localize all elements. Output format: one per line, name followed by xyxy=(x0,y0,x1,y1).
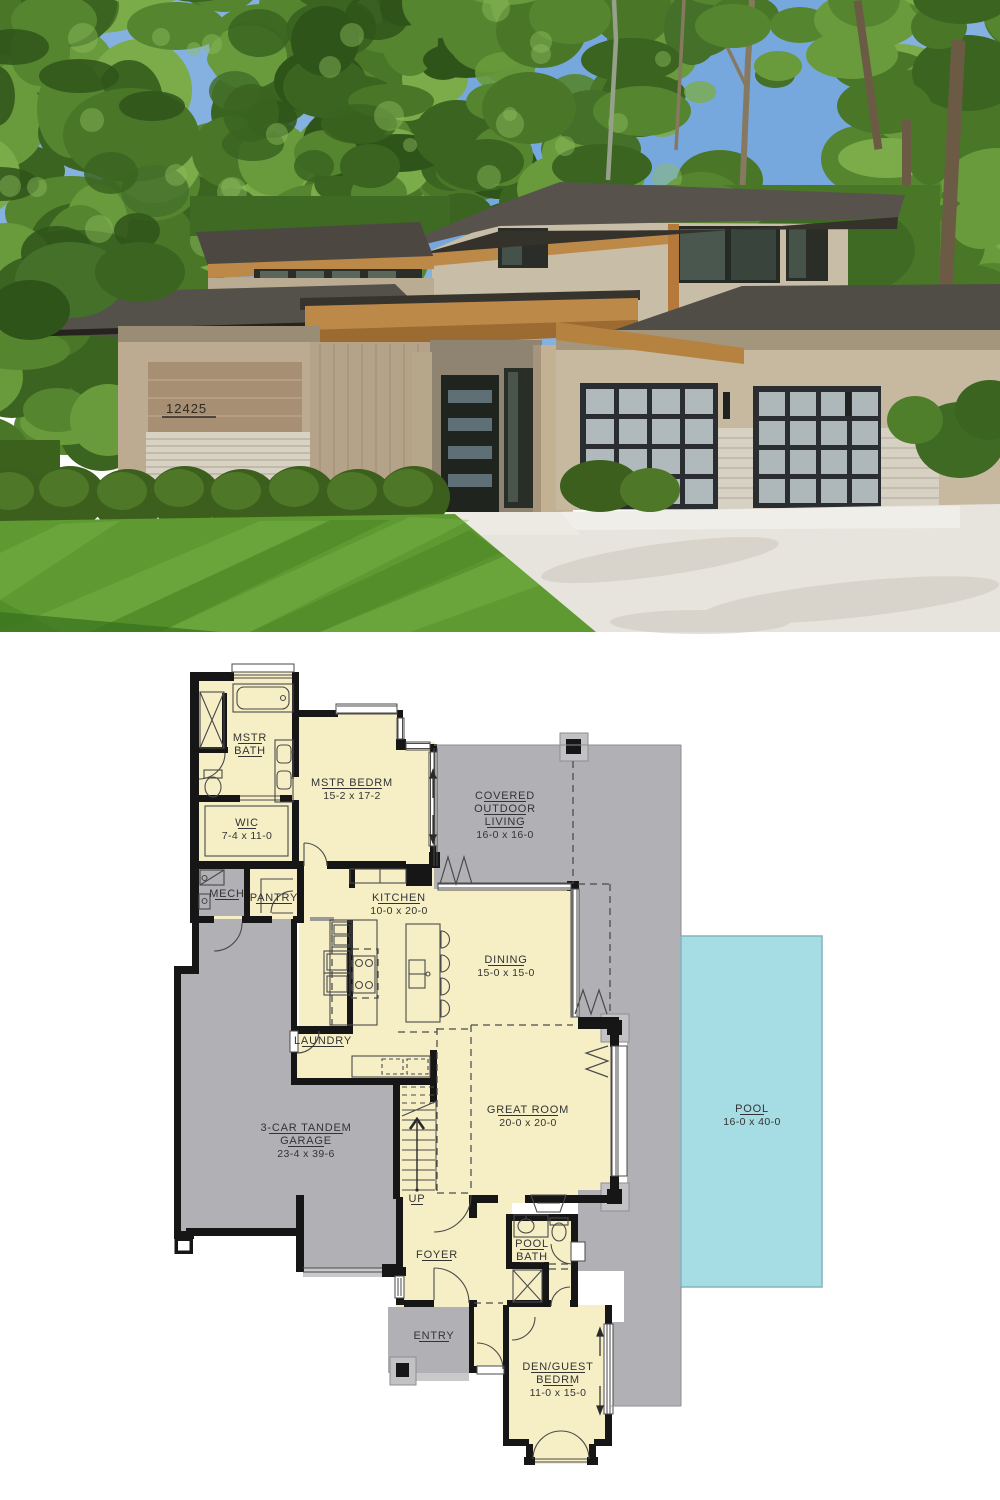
svg-text:LAUNDRY: LAUNDRY xyxy=(294,1035,352,1047)
svg-text:10-0 x 20-0: 10-0 x 20-0 xyxy=(370,905,428,917)
svg-text:POOL: POOL xyxy=(735,1103,769,1115)
svg-text:POOL: POOL xyxy=(515,1238,549,1250)
svg-text:DEN/GUEST: DEN/GUEST xyxy=(522,1361,593,1373)
svg-text:15-0 x 15-0: 15-0 x 15-0 xyxy=(477,967,535,979)
svg-text:16-0 x 40-0: 16-0 x 40-0 xyxy=(723,1116,781,1128)
svg-text:23-4 x 39-6: 23-4 x 39-6 xyxy=(277,1148,335,1160)
svg-text:BATH: BATH xyxy=(516,1251,548,1263)
svg-text:MSTR BEDRM: MSTR BEDRM xyxy=(311,777,393,789)
svg-text:OUTDOOR: OUTDOOR xyxy=(474,803,536,815)
svg-text:7-4 x 11-0: 7-4 x 11-0 xyxy=(222,830,273,842)
svg-text:UP: UP xyxy=(409,1193,426,1205)
svg-text:BEDRM: BEDRM xyxy=(536,1374,580,1386)
svg-text:WIC: WIC xyxy=(235,817,259,829)
svg-text:MECH: MECH xyxy=(209,888,245,900)
svg-text:KITCHEN: KITCHEN xyxy=(372,892,426,904)
svg-text:FOYER: FOYER xyxy=(416,1249,458,1261)
svg-text:15-2 x 17-2: 15-2 x 17-2 xyxy=(323,790,381,802)
svg-text:LIVING: LIVING xyxy=(485,816,526,828)
svg-text:3-CAR TANDEM: 3-CAR TANDEM xyxy=(260,1122,351,1134)
svg-text:20-0 x 20-0: 20-0 x 20-0 xyxy=(499,1117,557,1129)
svg-text:12425: 12425 xyxy=(166,401,207,416)
svg-text:16-0 x 16-0: 16-0 x 16-0 xyxy=(476,829,534,841)
svg-text:ENTRY: ENTRY xyxy=(413,1330,454,1342)
svg-text:DINING: DINING xyxy=(484,954,527,966)
svg-text:GARAGE: GARAGE xyxy=(280,1135,332,1147)
svg-text:COVERED: COVERED xyxy=(475,790,535,802)
svg-text:GREAT ROOM: GREAT ROOM xyxy=(487,1104,569,1116)
svg-text:MSTR: MSTR xyxy=(233,732,267,744)
svg-text:BATH: BATH xyxy=(234,745,266,757)
svg-text:PANTRY: PANTRY xyxy=(250,892,298,904)
svg-text:11-0 x 15-0: 11-0 x 15-0 xyxy=(530,1387,587,1399)
